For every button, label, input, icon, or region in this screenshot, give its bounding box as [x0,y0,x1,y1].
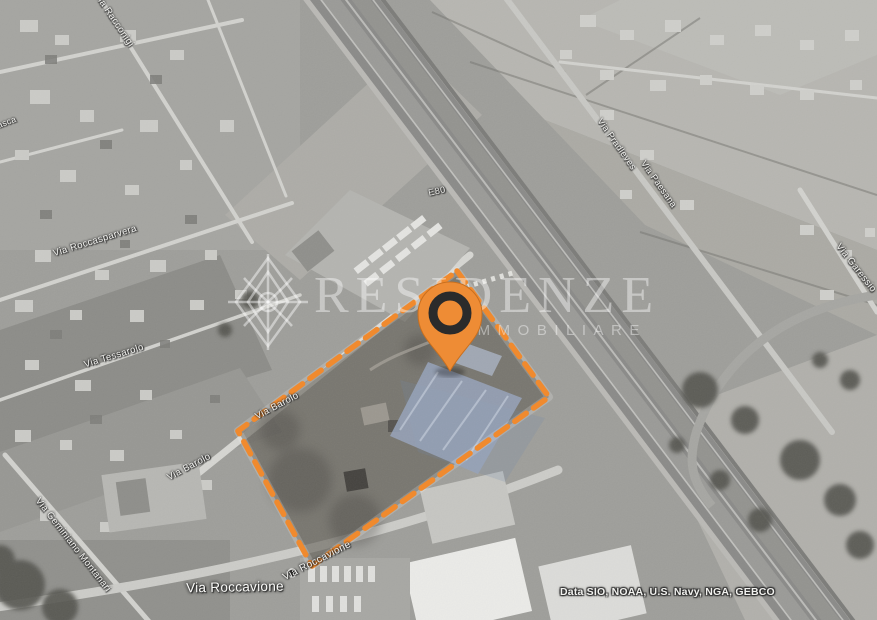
satellite-map-view[interactable]: Via Racconigi Via Cervasca Via Roccaspar… [0,0,877,620]
map-attribution: Data SIO, NOAA, U.S. Navy, NGA, GEBCO [560,586,775,598]
street-label-via-roccavione-main: Via Roccavione [186,579,284,596]
